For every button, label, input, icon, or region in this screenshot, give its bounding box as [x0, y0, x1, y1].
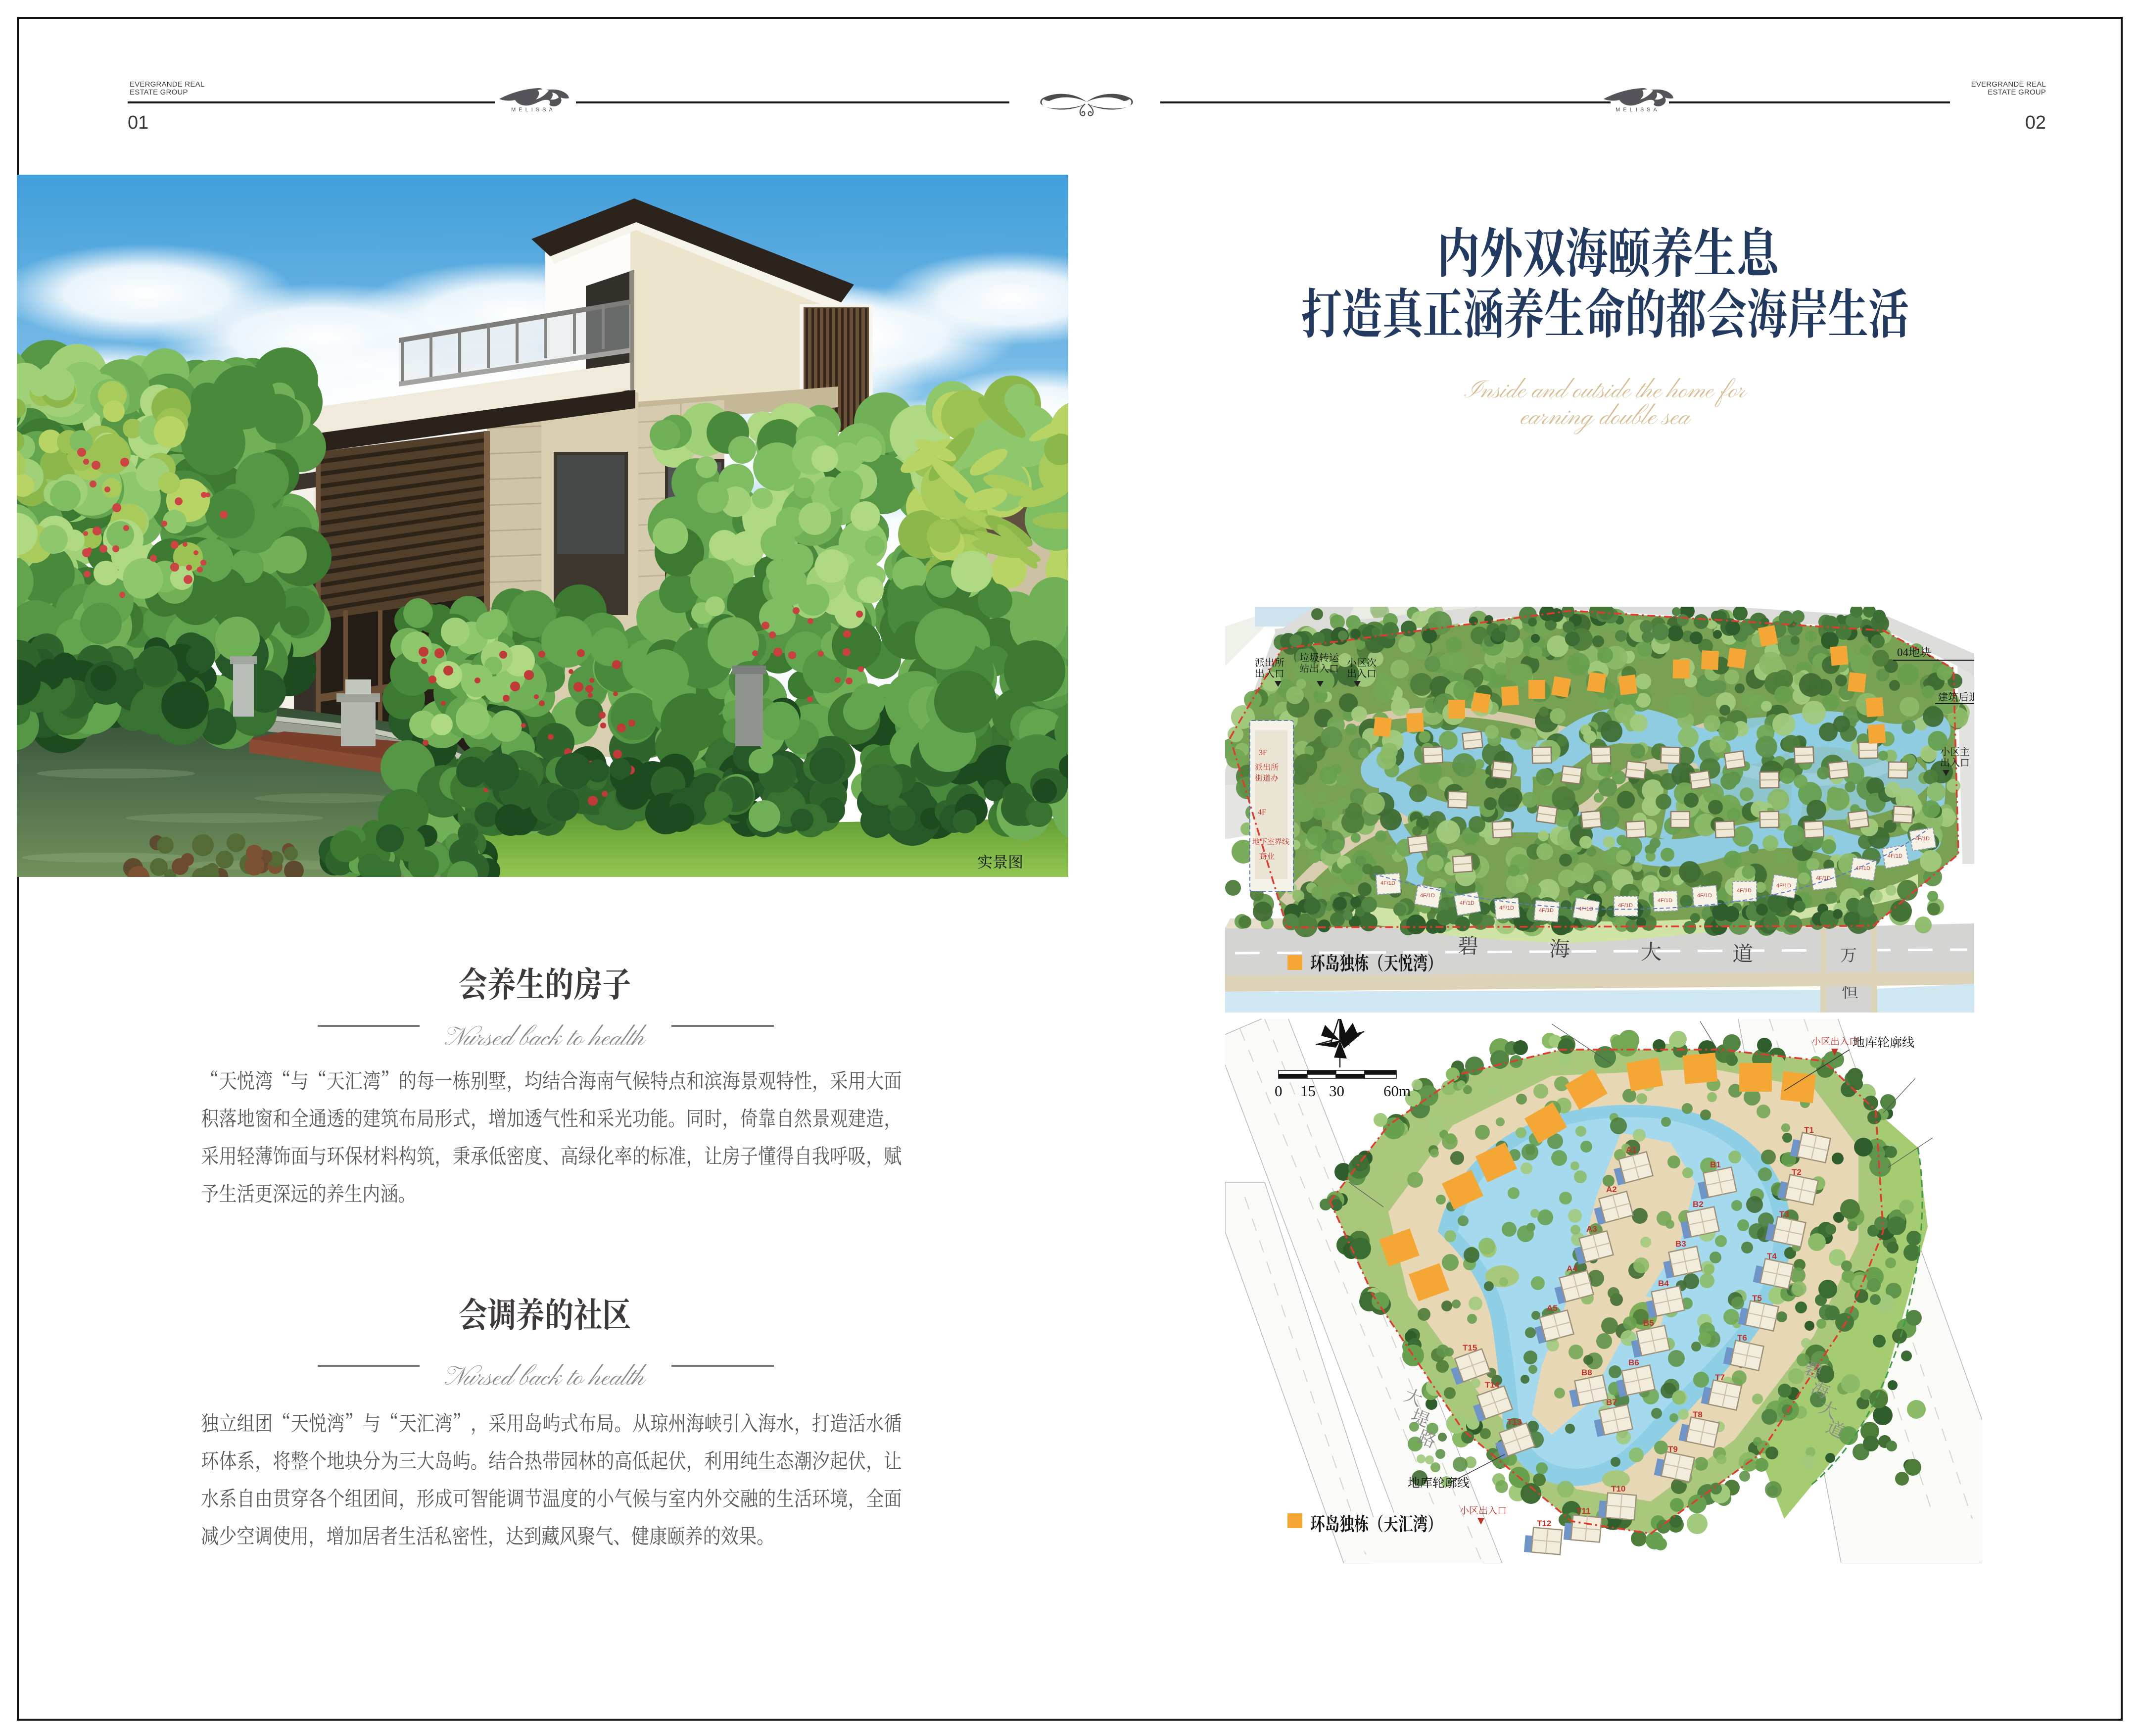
- svg-text:3F: 3F: [1259, 746, 1267, 758]
- svg-text:4F/1D: 4F/1D: [1658, 898, 1672, 904]
- svg-text:A2: A2: [1606, 1185, 1617, 1194]
- svg-text:派出所: 派出所: [1255, 761, 1279, 772]
- svg-text:T15: T15: [1463, 1343, 1477, 1352]
- svg-text:T9: T9: [1668, 1445, 1678, 1454]
- svg-text:15: 15: [1300, 1082, 1316, 1100]
- svg-text:万: 万: [1840, 942, 1857, 966]
- svg-text:碧: 碧: [1458, 930, 1478, 960]
- svg-text:4F/1D: 4F/1D: [1618, 903, 1633, 909]
- svg-text:T12: T12: [1537, 1519, 1551, 1528]
- svg-text:A5: A5: [1547, 1303, 1558, 1313]
- svg-text:T8: T8: [1693, 1410, 1703, 1419]
- svg-text:A4: A4: [1567, 1264, 1577, 1273]
- svg-text:小区出入口: 小区出入口: [1460, 1503, 1507, 1517]
- svg-text:T7: T7: [1715, 1373, 1725, 1382]
- svg-text:B4: B4: [1658, 1279, 1669, 1288]
- svg-text:04地块: 04地块: [1897, 643, 1931, 660]
- svg-text:30: 30: [1329, 1082, 1344, 1100]
- svg-text:建筑后退线: 建筑后退线: [1938, 689, 1974, 704]
- svg-text:T11: T11: [1576, 1506, 1590, 1516]
- svg-text:MELISSA: MELISSA: [511, 107, 556, 113]
- svg-text:T6: T6: [1737, 1333, 1747, 1343]
- svg-text:站出入口: 站出入口: [1299, 661, 1339, 675]
- svg-text:T1: T1: [1804, 1125, 1814, 1135]
- svg-text:MELISSA: MELISSA: [1616, 107, 1660, 113]
- svg-text:A1: A1: [1626, 1145, 1637, 1155]
- svg-text:4F/1D: 4F/1D: [1888, 853, 1902, 859]
- svg-text:T10: T10: [1611, 1484, 1625, 1494]
- svg-text:4F/1D: 4F/1D: [1539, 908, 1554, 914]
- svg-text:B3: B3: [1675, 1239, 1686, 1249]
- svg-text:道: 道: [1732, 938, 1753, 967]
- svg-text:4F/1D: 4F/1D: [1737, 888, 1752, 894]
- svg-text:T5: T5: [1752, 1294, 1762, 1303]
- svg-text:地库轮廓线: 地库轮廓线: [1853, 1033, 1914, 1051]
- svg-text:60m: 60m: [1383, 1082, 1411, 1100]
- svg-text:4F/1D: 4F/1D: [1420, 893, 1435, 899]
- svg-text:大: 大: [1641, 936, 1662, 965]
- svg-text:4F/1D: 4F/1D: [1380, 880, 1395, 886]
- svg-text:小区出入口: 小区出入口: [1811, 1034, 1858, 1048]
- svg-text:地下室界线: 地下室界线: [1252, 836, 1289, 847]
- svg-text:街道办: 街道办: [1255, 772, 1279, 783]
- svg-text:0: 0: [1275, 1082, 1283, 1100]
- svg-text:4F: 4F: [1258, 806, 1266, 817]
- svg-text:A3: A3: [1586, 1224, 1597, 1234]
- svg-text:B6: B6: [1628, 1358, 1639, 1367]
- svg-text:4F/1D: 4F/1D: [1697, 893, 1712, 899]
- svg-text:出入口: 出入口: [1940, 755, 1970, 769]
- svg-text:T4: T4: [1767, 1252, 1777, 1261]
- svg-text:4F/1D: 4F/1D: [1460, 900, 1474, 906]
- svg-text:4F/1D: 4F/1D: [1499, 905, 1514, 911]
- svg-text:海: 海: [1549, 933, 1570, 963]
- svg-text:B8: B8: [1581, 1368, 1592, 1377]
- svg-text:B2: B2: [1693, 1200, 1704, 1209]
- svg-text:出入口: 出入口: [1255, 666, 1284, 680]
- svg-text:商业: 商业: [1259, 850, 1275, 862]
- svg-text:T14: T14: [1485, 1380, 1500, 1390]
- svg-text:T13: T13: [1507, 1417, 1521, 1427]
- svg-text:T2: T2: [1792, 1167, 1802, 1177]
- svg-text:地库轮廓线: 地库轮廓线: [1408, 1473, 1470, 1491]
- svg-text:B5: B5: [1643, 1318, 1654, 1328]
- svg-text:T3: T3: [1779, 1209, 1789, 1219]
- svg-text:B1: B1: [1710, 1160, 1721, 1169]
- svg-text:4F/1D: 4F/1D: [1816, 875, 1831, 881]
- svg-text:4F/1D: 4F/1D: [1776, 883, 1791, 889]
- svg-text:出入口: 出入口: [1347, 666, 1377, 680]
